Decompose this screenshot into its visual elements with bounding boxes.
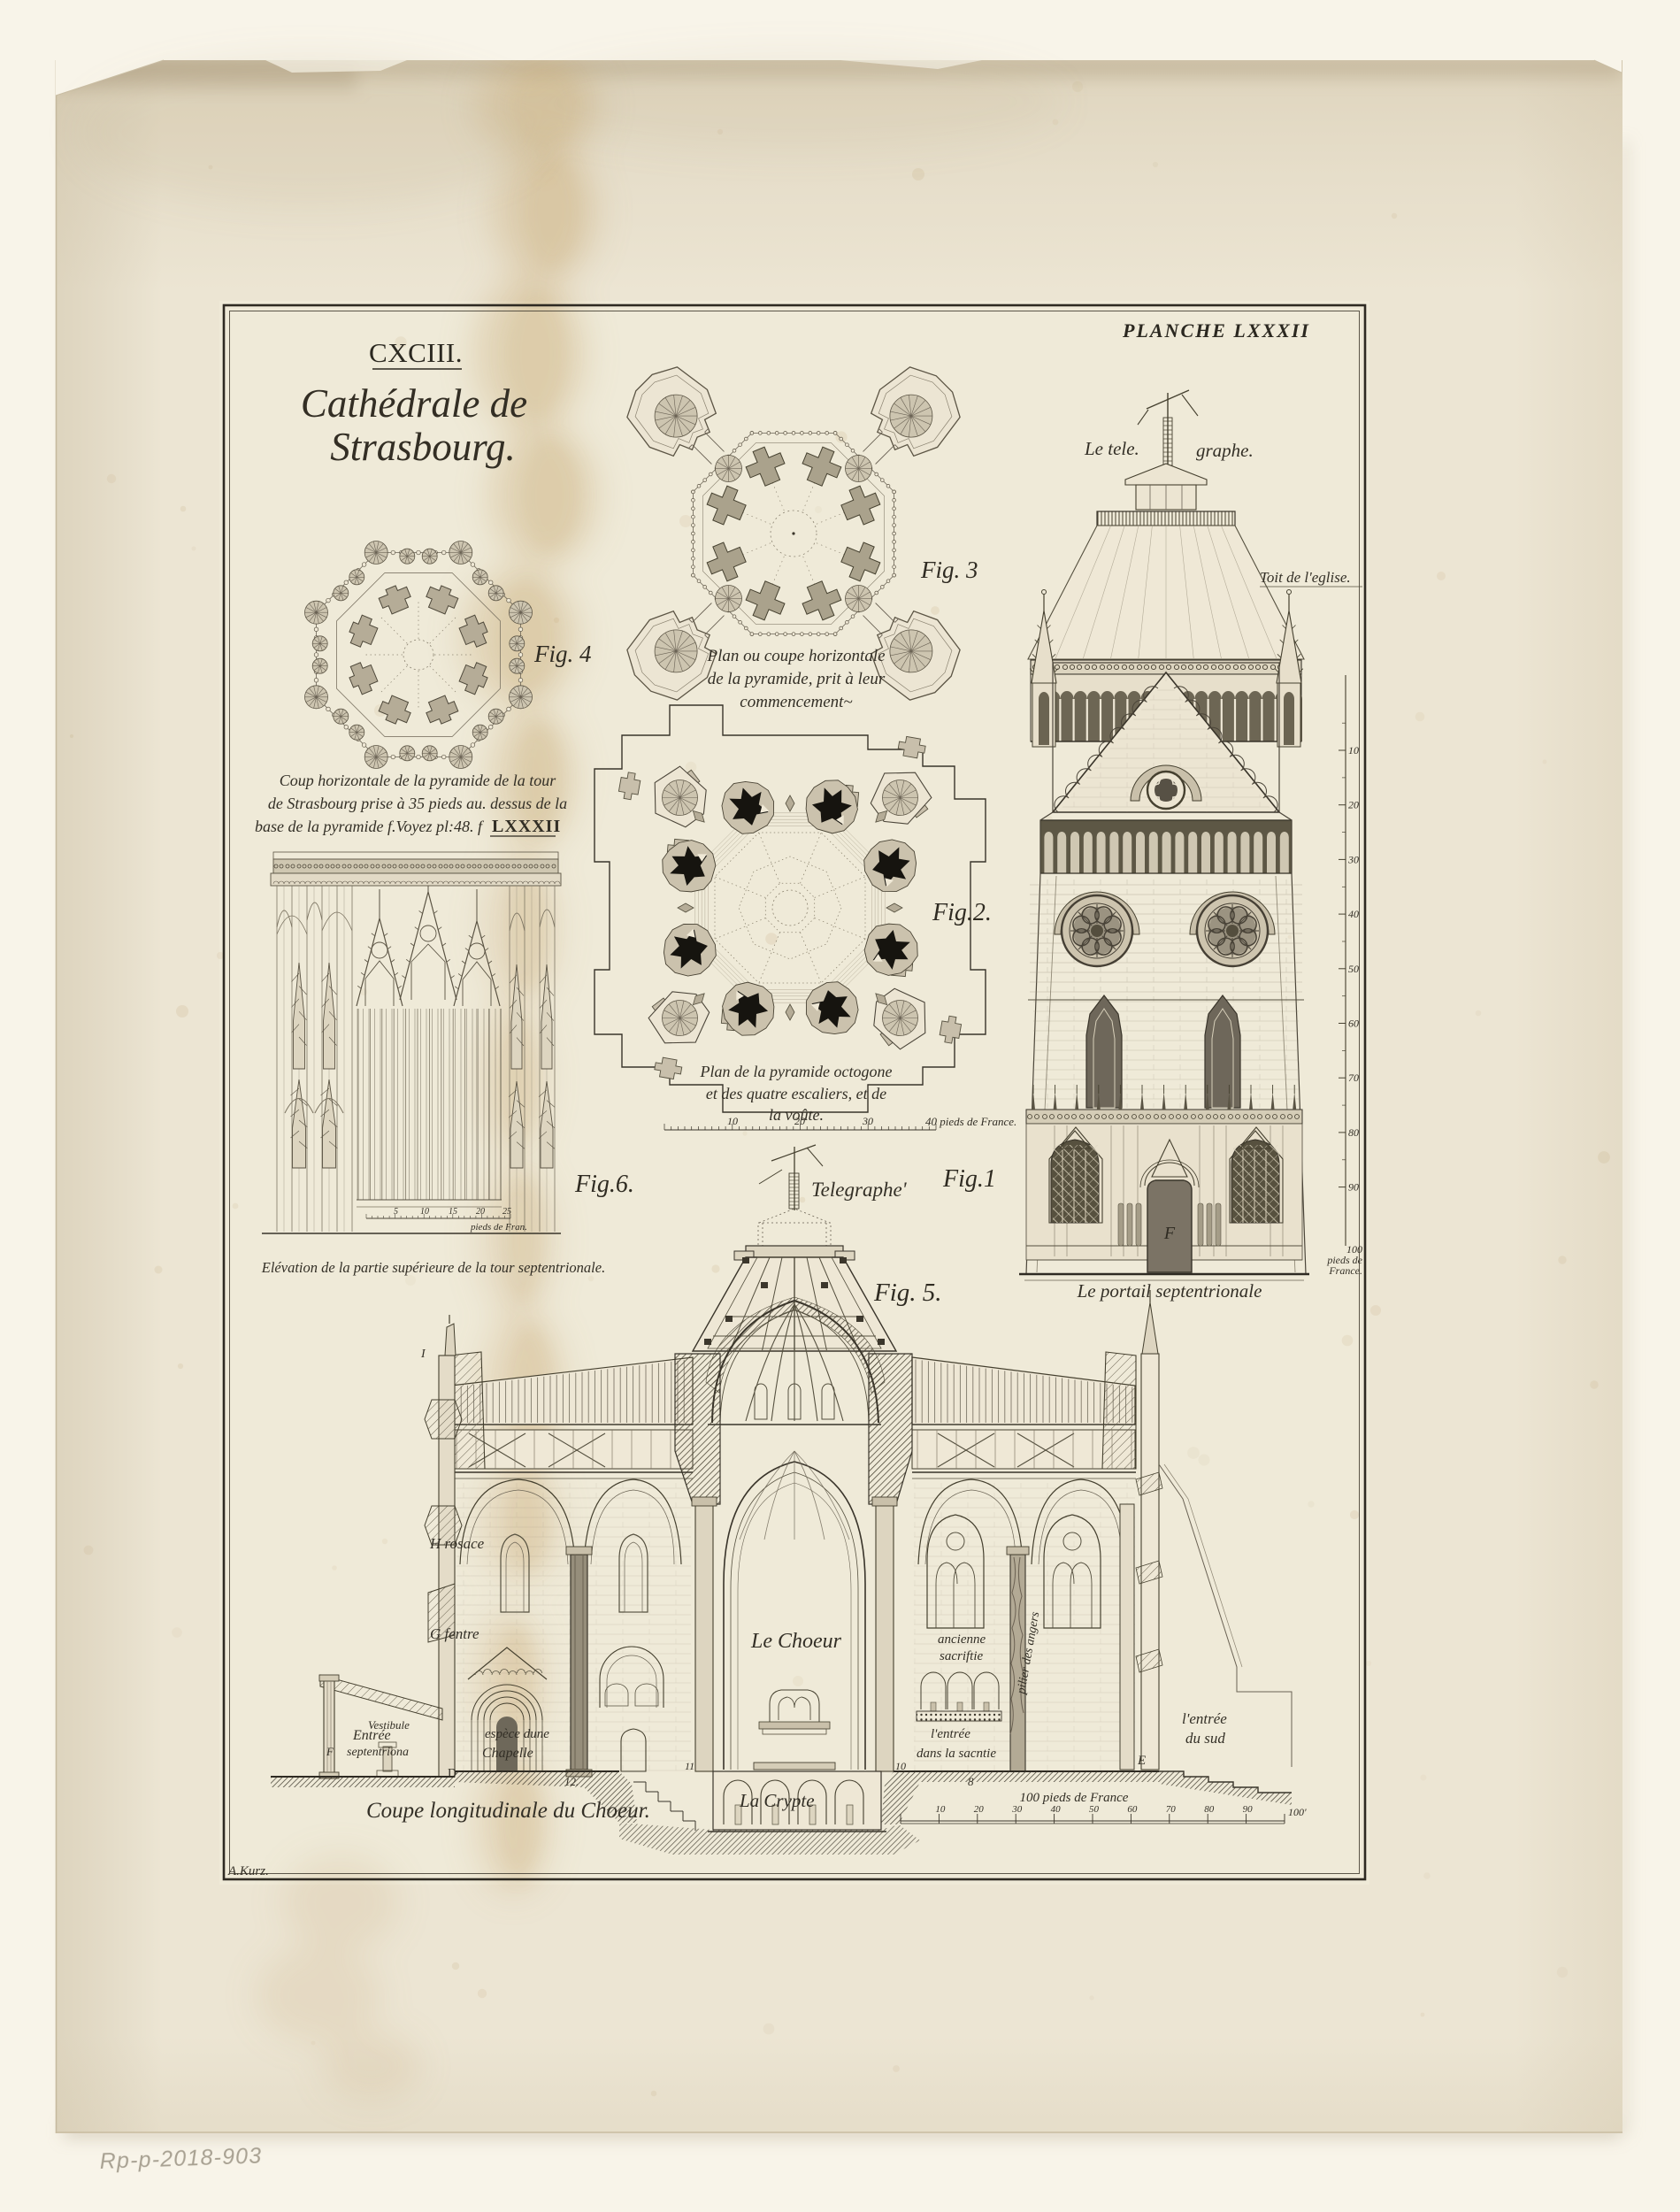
svg-text:Coupe longitudinale du Choeur.: Coupe longitudinale du Choeur. [366, 1799, 650, 1823]
svg-text:10: 10 [727, 1115, 738, 1127]
svg-text:20: 20 [974, 1804, 985, 1815]
svg-text:Le tele.: Le tele. [1084, 438, 1139, 459]
svg-text:10: 10 [420, 1207, 429, 1217]
svg-text:F: F [1163, 1224, 1176, 1243]
svg-text:sacriftie: sacriftie [940, 1649, 984, 1663]
svg-text:10: 10 [895, 1760, 906, 1772]
svg-text:espèce dune: espèce dune [485, 1727, 549, 1741]
svg-text:Fig.2.: Fig.2. [932, 899, 992, 926]
svg-text:Rp-p-2018-903: Rp-p-2018-903 [99, 2144, 263, 2174]
svg-text:Fig. 5.: Fig. 5. [873, 1279, 942, 1307]
svg-text:E: E [1137, 1754, 1146, 1768]
svg-text:80: 80 [1204, 1804, 1215, 1815]
svg-text:LXXXII: LXXXII [492, 817, 561, 836]
svg-text:80: 80 [1348, 1126, 1359, 1139]
svg-text:Fig. 3: Fig. 3 [920, 557, 978, 583]
svg-text:20: 20 [1348, 799, 1359, 811]
svg-text:l'entrée: l'entrée [1182, 1710, 1227, 1727]
svg-text:l'entrée: l'entrée [931, 1727, 970, 1741]
svg-text:Le portail septentrionale: Le portail septentrionale [1077, 1280, 1262, 1302]
svg-text:Toit de l'eglise.: Toit de l'eglise. [1260, 569, 1351, 586]
svg-text:Fig. 4: Fig. 4 [533, 641, 592, 667]
svg-text:20: 20 [794, 1115, 805, 1127]
svg-text:graphe.: graphe. [1196, 440, 1254, 461]
svg-text:France.: France. [1328, 1264, 1362, 1277]
svg-text:A.Kurz.: A.Kurz. [227, 1864, 269, 1878]
svg-text:CXCIII.: CXCIII. [369, 337, 463, 368]
svg-text:du sud: du sud [1185, 1730, 1225, 1747]
svg-text:Cathédrale de: Cathédrale de [301, 381, 527, 426]
svg-text:10: 10 [1348, 744, 1359, 757]
svg-text:60: 60 [1127, 1804, 1138, 1815]
svg-text:40 pieds de France.: 40 pieds de France. [925, 1115, 1016, 1128]
svg-text:F: F [326, 1745, 334, 1758]
svg-text:50: 50 [1348, 963, 1359, 975]
svg-text:Plan ou coupe horizontale: Plan ou coupe horizontale [706, 647, 885, 665]
svg-text:100': 100' [1288, 1806, 1307, 1818]
svg-text:30: 30 [862, 1115, 873, 1127]
svg-text:Telegraphe': Telegraphe' [811, 1179, 908, 1201]
svg-text:40: 40 [1348, 908, 1359, 920]
svg-text:La Crypte: La Crypte [739, 1790, 815, 1811]
svg-text:de la pyramide, prit à leur: de la pyramide, prit à leur [708, 670, 886, 688]
svg-text:Fig.6.: Fig.6. [574, 1171, 634, 1198]
svg-text:50: 50 [1089, 1804, 1100, 1815]
svg-text:40: 40 [1051, 1804, 1062, 1815]
svg-text:base de la pyramide f.Voyez pl: base de la pyramide f.Voyez pl:48. f [255, 818, 485, 835]
svg-text:70: 70 [1166, 1804, 1177, 1815]
svg-text:ancienne: ancienne [938, 1632, 986, 1647]
svg-text:15: 15 [449, 1207, 457, 1217]
svg-text:10: 10 [935, 1804, 946, 1815]
svg-text:90: 90 [1348, 1181, 1359, 1194]
svg-text:90: 90 [1243, 1804, 1254, 1815]
svg-text:et des quatre escaliers, et de: et des quatre escaliers, et de [706, 1085, 886, 1102]
svg-text:30: 30 [1011, 1804, 1023, 1815]
svg-text:G fentre: G fentre [430, 1625, 479, 1642]
svg-text:11: 11 [685, 1760, 694, 1772]
svg-text:dans la sacntie: dans la sacntie [917, 1747, 996, 1761]
svg-text:60: 60 [1348, 1018, 1359, 1030]
svg-text:100 pieds de France: 100 pieds de France [1020, 1791, 1129, 1805]
svg-text:Elévation de la partie supérie: Elévation de la partie supérieure de la … [261, 1259, 605, 1276]
svg-text:Entrée: Entrée [352, 1728, 391, 1743]
svg-text:25: 25 [502, 1207, 511, 1217]
svg-text:Le Choeur: Le Choeur [750, 1630, 842, 1653]
svg-text:Plan de la pyramide octogone: Plan de la pyramide octogone [700, 1063, 893, 1080]
svg-text:Coup horizontale de la pyramid: Coup horizontale de la pyramide de la to… [280, 772, 556, 789]
svg-text:PLANCHE LXXXII: PLANCHE LXXXII [1122, 319, 1310, 342]
svg-text:20: 20 [476, 1207, 485, 1217]
svg-text:Strasbourg.: Strasbourg. [330, 425, 516, 469]
svg-text:Fig.1: Fig.1 [942, 1165, 996, 1193]
svg-text:H rosace: H rosace [429, 1535, 485, 1552]
svg-text:septentriona: septentriona [347, 1746, 409, 1759]
svg-text:70: 70 [1348, 1071, 1359, 1084]
svg-text:commencement~: commencement~ [740, 693, 852, 711]
svg-text:30: 30 [1347, 853, 1359, 865]
svg-text:5: 5 [394, 1207, 398, 1217]
svg-text:Chapelle: Chapelle [482, 1746, 533, 1761]
svg-text:pieds de Fran.: pieds de Fran. [470, 1222, 527, 1233]
svg-text:de Strasbourg prise à 35 pieds: de Strasbourg prise à 35 pieds au. dessu… [268, 795, 567, 812]
